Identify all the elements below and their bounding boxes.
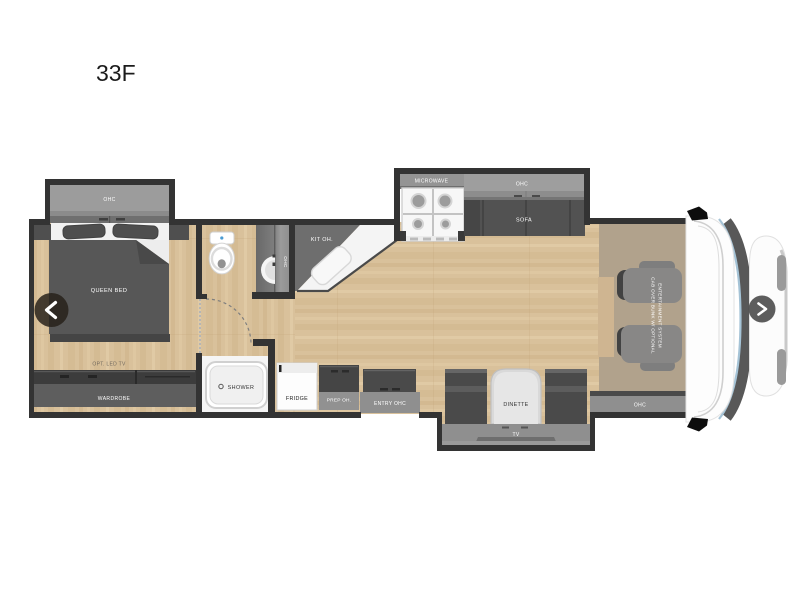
svg-text:ENTRY OHC: ENTRY OHC xyxy=(374,401,406,407)
svg-text:PREP OH.: PREP OH. xyxy=(327,398,351,404)
svg-text:CAB OVER BUNK W/ OPTIONAL: CAB OVER BUNK W/ OPTIONAL xyxy=(651,277,656,354)
svg-text:WARDROBE: WARDROBE xyxy=(98,396,131,402)
svg-text:QUEEN BED: QUEEN BED xyxy=(91,288,128,294)
svg-text:OPT. LED TV: OPT. LED TV xyxy=(92,362,126,368)
svg-text:ENTERTAINMENT SYSTEM: ENTERTAINMENT SYSTEM xyxy=(658,283,663,348)
svg-text:OHC: OHC xyxy=(283,256,288,268)
svg-text:OHC: OHC xyxy=(103,197,115,203)
svg-text:FRIDGE: FRIDGE xyxy=(286,396,308,402)
svg-text:OHC: OHC xyxy=(634,403,646,409)
svg-text:SHOWER: SHOWER xyxy=(228,385,255,391)
svg-text:OHC: OHC xyxy=(516,182,528,188)
svg-text:KIT OH.: KIT OH. xyxy=(311,237,333,243)
svg-text:SOFA: SOFA xyxy=(516,218,532,224)
svg-text:DINETTE: DINETTE xyxy=(503,402,528,408)
svg-text:MICROWAVE: MICROWAVE xyxy=(415,179,449,185)
